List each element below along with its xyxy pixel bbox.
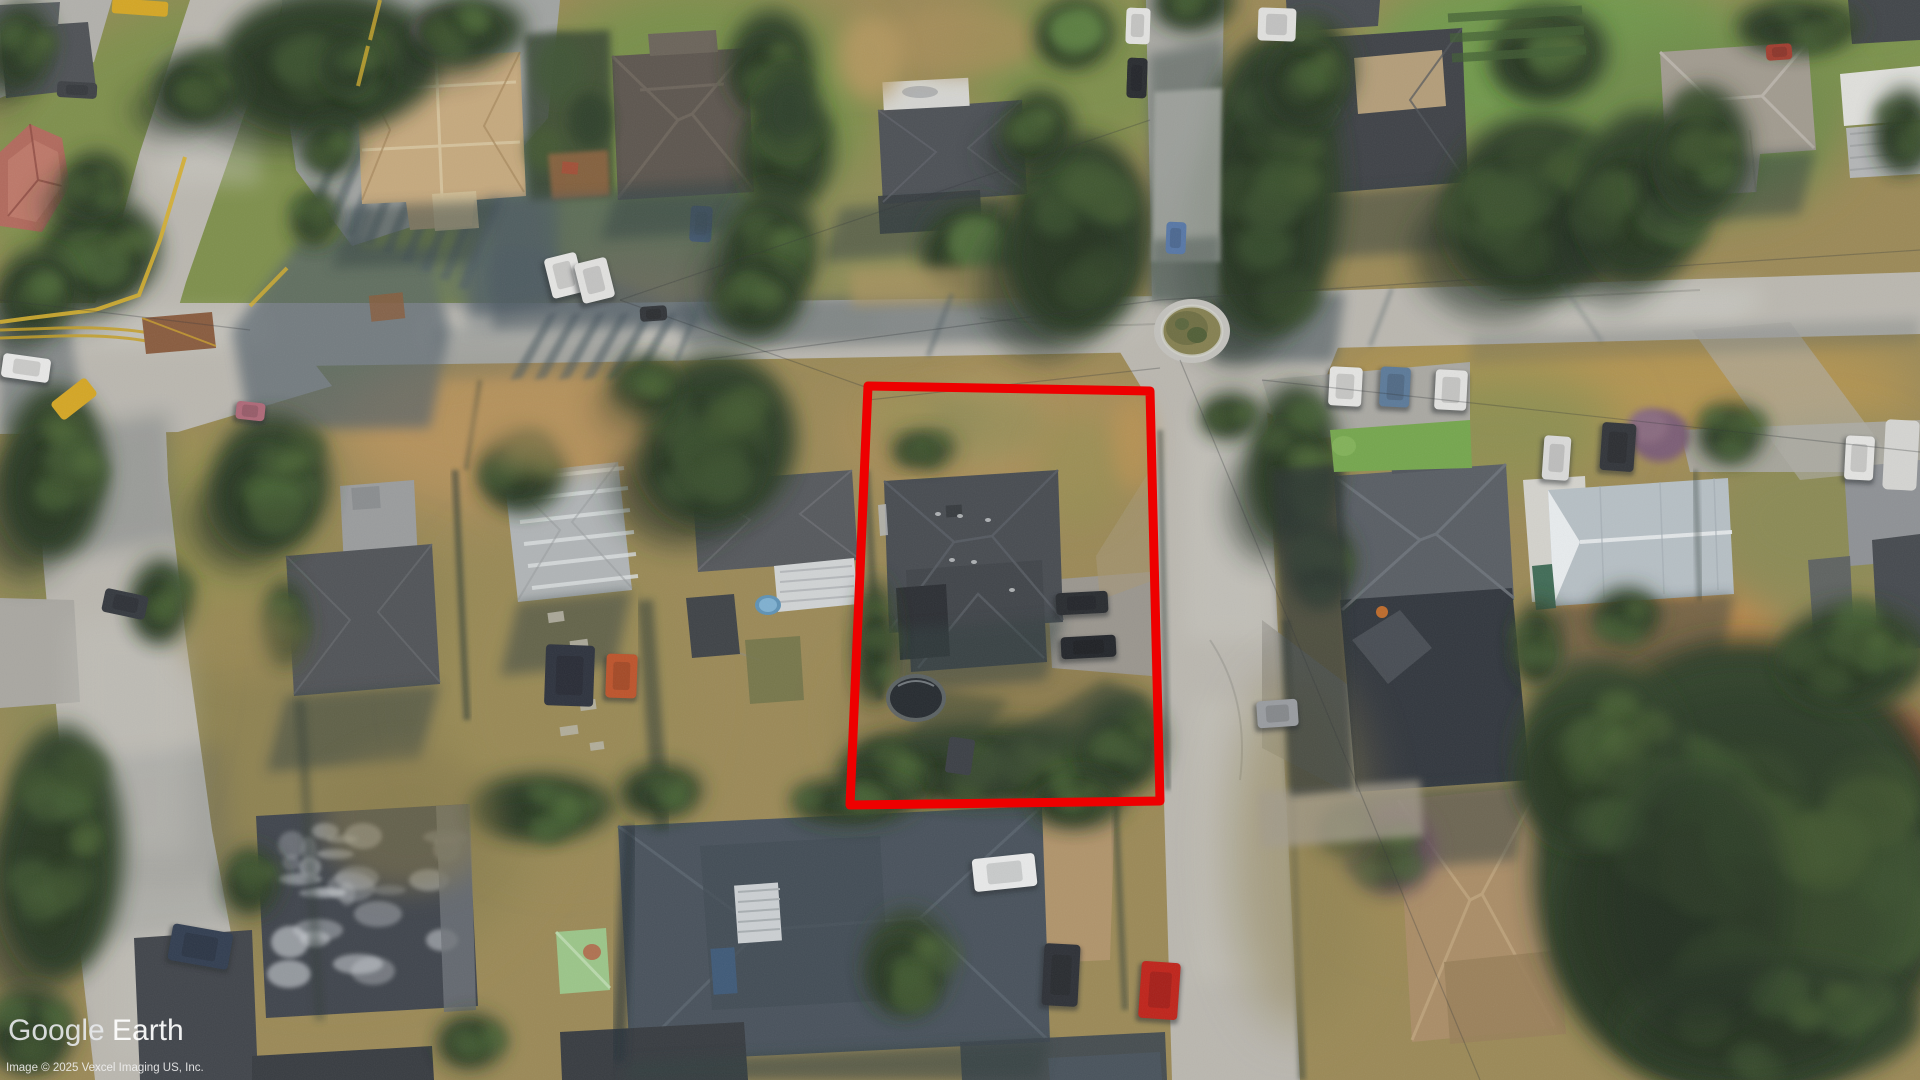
svg-text:Image © 2025 Vexcel Imaging US: Image © 2025 Vexcel Imaging US, Inc. — [6, 1062, 204, 1074]
svg-text:Earth: Earth — [112, 1014, 184, 1047]
svg-text:Google: Google — [8, 1014, 105, 1047]
